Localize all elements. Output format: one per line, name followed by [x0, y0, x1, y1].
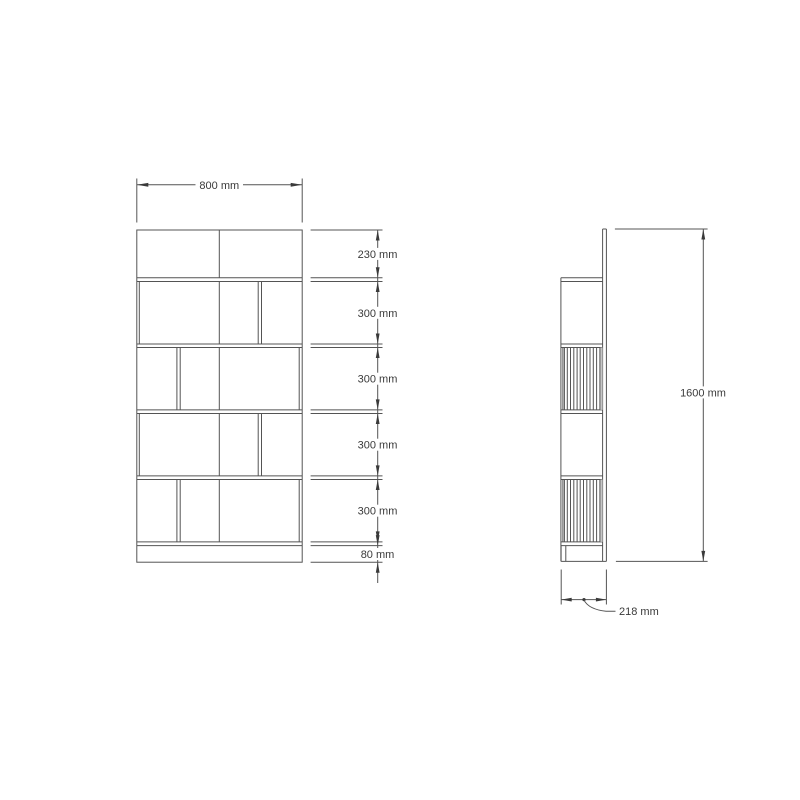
svg-text:300 mm: 300 mm — [358, 374, 398, 386]
svg-text:300 mm: 300 mm — [358, 506, 398, 518]
svg-text:230 mm: 230 mm — [358, 249, 398, 261]
svg-text:300 mm: 300 mm — [358, 308, 398, 320]
svg-text:300 mm: 300 mm — [358, 440, 398, 452]
svg-text:1600 mm: 1600 mm — [680, 387, 726, 399]
svg-text:80 mm: 80 mm — [361, 549, 395, 561]
svg-text:800 mm: 800 mm — [199, 180, 239, 192]
svg-text:218 mm: 218 mm — [619, 606, 659, 618]
